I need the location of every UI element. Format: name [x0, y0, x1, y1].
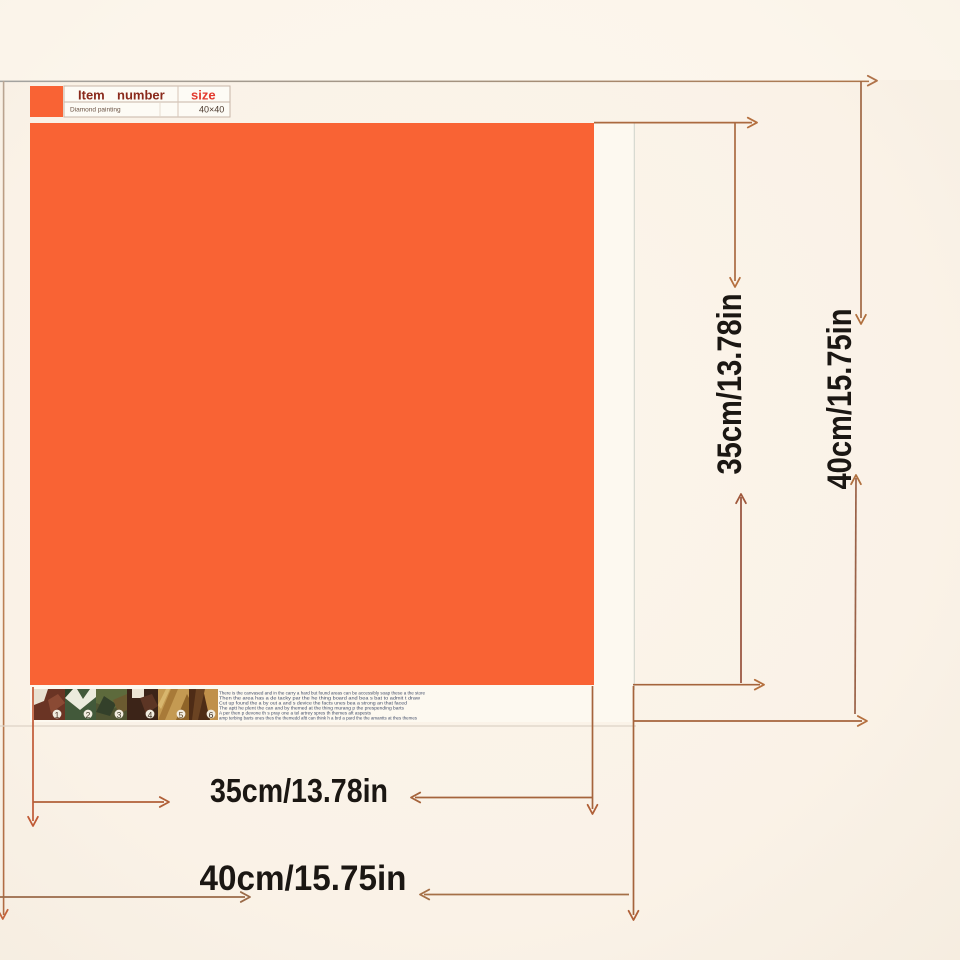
svg-text:5: 5: [179, 710, 184, 720]
svg-text:35cm/13.78in: 35cm/13.78in: [210, 772, 388, 809]
svg-text:1: 1: [55, 710, 60, 720]
svg-text:40cm/15.75in: 40cm/15.75in: [821, 309, 859, 490]
svg-text:number: number: [117, 88, 165, 103]
svg-text:size: size: [191, 88, 216, 103]
svg-text:2: 2: [86, 710, 91, 720]
svg-text:Diamond painting: Diamond painting: [70, 107, 121, 114]
svg-text:40×40: 40×40: [199, 105, 224, 115]
svg-text:3: 3: [117, 710, 122, 720]
svg-text:35cm/13.78in: 35cm/13.78in: [711, 294, 749, 475]
svg-text:6: 6: [209, 710, 214, 720]
svg-text:Item: Item: [78, 88, 105, 103]
svg-text:40cm/15.75in: 40cm/15.75in: [200, 859, 407, 898]
svg-text:4: 4: [148, 710, 153, 720]
svg-text:amp terbing barts ones thes th: amp terbing barts ones thes the themedd …: [219, 716, 418, 721]
